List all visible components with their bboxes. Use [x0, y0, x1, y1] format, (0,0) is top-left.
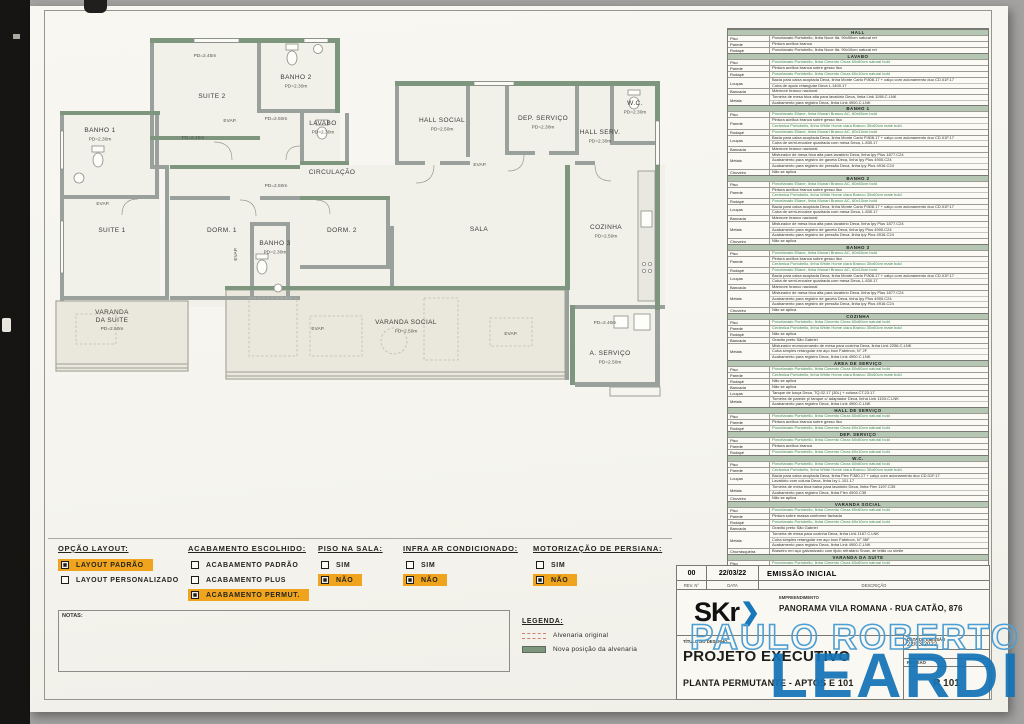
room-label: A. SERVIÇO [589, 350, 630, 357]
spec-row-lines: Pintura acrílica branca sobre gesso liso… [770, 188, 988, 198]
spec-row-label: Bancada [728, 526, 770, 531]
spec-line: Cerâmica Portobello, linha White Home cl… [770, 468, 988, 473]
spec-row: PisoPorcelanato Portobello, linha Ciment… [728, 366, 988, 372]
spec-row-lines: Não se aplica [770, 170, 988, 175]
spec-row-label: Louças [728, 136, 770, 146]
spec-line: Pintura acrílica branca sobre gesso liso [770, 420, 988, 425]
spec-line: Porcelanato Eliane, linha Munari Branco … [770, 199, 988, 204]
option-item: NÃO [533, 574, 577, 586]
spec-line: Porcelanato Eliane, linha Munari Branco … [770, 112, 988, 117]
option-item: ACABAMENTO PLUS [188, 574, 295, 586]
option-item: ACABAMENTO PERMUT. [188, 589, 309, 601]
legend-item: Nova posição da alvenaria [522, 646, 637, 653]
spec-row-label: Bancada [728, 89, 770, 94]
spec-row-label: Piso [728, 251, 770, 256]
revision-row: 00 22/03/22 EMISSÃO INICIAL [677, 566, 989, 581]
spec-line: Não se aplica [770, 170, 988, 175]
spec-row: RodapéPorcelanato Portobello, linha Cime… [728, 71, 988, 77]
spec-row: BancadaNão se aplica [728, 384, 988, 390]
spec-row-lines: Porcelanato Portobello, linha Cimento Ci… [770, 367, 988, 372]
spec-row-label: Bancada [728, 385, 770, 390]
spec-row-label: Parede [728, 66, 770, 71]
photo-artifact [2, 318, 11, 332]
spec-line: Porcelanato Portobello, linha Noce Itá. … [770, 48, 988, 53]
spec-line: Mármore branco nacional [770, 89, 988, 94]
spec-row-lines: Torneira de mesa bica baixa para lavatór… [770, 485, 988, 495]
drawing-sheet: SUITE 2BANHO 2PD=2.30mBANHO 1PD=2.30mLAV… [30, 6, 1008, 712]
spec-row: LouçasBacia para caixa acoplada Deca, li… [728, 135, 988, 146]
spec-row: RodapéPorcelanato Eliane, linha Munari B… [728, 267, 988, 273]
spec-line: Cerâmica Portobello, linha White Home cl… [770, 373, 988, 378]
spec-row-lines: Torneira de mesa bica alta para lavatóri… [770, 95, 988, 105]
option-label: ACABAMENTO PLUS [206, 577, 286, 584]
notes-label: NOTAS: [59, 611, 509, 621]
spec-row: PisoPorcelanato Portobello, linha Ciment… [728, 59, 988, 65]
spec-row-lines: Bacia para caixa acoplada Deca, linha Mo… [770, 136, 988, 146]
spec-row: PisoPorcelanato Portobello, linha Ciment… [728, 437, 988, 443]
spec-line: Mármore branco nacional [770, 285, 988, 290]
spec-row-lines: Torneira de parede p/ tanque c/ adaptado… [770, 397, 988, 407]
spec-row-label: Metais [728, 291, 770, 307]
option-label: LAYOUT PADRÃO [76, 562, 144, 569]
spec-row-lines: Porcelanato Portobello, linha Cimento Ci… [770, 72, 988, 77]
spec-line: Porcelanato Portobello, linha Cimento Ci… [770, 508, 988, 513]
revision-description: EMISSÃO INICIAL [759, 566, 989, 580]
room-label: EVAP. [96, 201, 109, 207]
spec-row-label: Parede [728, 257, 770, 267]
spec-line: Granito preto São Gabriel [770, 526, 988, 531]
spec-line: Acabamento para registro Deca, linha Lin… [770, 401, 988, 407]
spec-line: Cuba de semi-encaixe quadrada com mesa D… [770, 278, 988, 284]
spec-line: Mármore branco nacional [770, 147, 988, 152]
spec-row-lines: Porcelanato Eliane, linha Munari Branco … [770, 199, 988, 204]
spec-row-label: Parede [728, 373, 770, 378]
spec-row: RodapéPorcelanato Portobello, linha Noce… [728, 47, 988, 53]
spec-line: Cerâmica Portobello, linha White Home cl… [770, 326, 988, 331]
development-label: EMPREENDIMENTO [779, 595, 985, 600]
revision-number: 00 [677, 566, 707, 580]
room-label: DORM. 2 [327, 227, 357, 234]
spec-row: RodapéPorcelanato Portobello, linha Cime… [728, 519, 988, 525]
room-label: EVAP. [504, 331, 517, 337]
spec-row-label: Piso [728, 438, 770, 443]
spec-row-label: Rodapé [728, 450, 770, 455]
spec-line: Não se aplica [770, 379, 988, 384]
legend-title: LEGENDA: [522, 618, 637, 625]
spec-row-label: Piso [728, 112, 770, 117]
room-label: PD=2.45m [182, 135, 205, 141]
room-label: PD=2.50m [265, 116, 288, 122]
spec-row-lines: Misturador de mesa bica alta para lavató… [770, 222, 988, 238]
spec-line: Cerâmica Portobello, linha White Home cl… [770, 261, 988, 267]
option-group: ACABAMENTO ESCOLHIDO:ACABAMENTO PADRÃOAC… [188, 544, 309, 604]
room-label: HALL SOCIAL [419, 117, 465, 124]
divider-line [48, 538, 672, 539]
spec-row: MetaisTorneira de mesa bica alta para la… [728, 94, 988, 105]
photo-artifact [84, 0, 107, 13]
spec-row-lines: Pintura acrílica branca [770, 444, 988, 449]
spec-row-label: Piso [728, 367, 770, 372]
spec-row-label: Parede [728, 468, 770, 473]
legend-swatch-original [522, 633, 546, 639]
spec-line: Cerâmica Portobello, linha White Home cl… [770, 123, 988, 129]
option-item: SIM [533, 559, 574, 571]
checkbox[interactable] [61, 576, 69, 584]
spec-row-label: Louças [728, 391, 770, 396]
spec-line: Porcelanato Portobello, linha Cimento Ci… [770, 60, 988, 65]
spec-row: ChurrasqueiraBraseiro em aço galvanizado… [728, 548, 988, 554]
room-label: EVAP. [311, 326, 324, 332]
option-label: SIM [421, 562, 435, 569]
spec-row-lines: Cerâmica Portobello, linha White Home cl… [770, 373, 988, 378]
spec-line: Porcelanato Eliane, linha Munari Branco … [770, 251, 988, 256]
spec-row: MetaisMisturador de mesa bica alta para … [728, 152, 988, 169]
spec-line: Acabamento para registro de pressão Deca… [770, 232, 988, 238]
spec-row: ParedePintura acrílica branca sobre gess… [728, 65, 988, 71]
spec-row-label: Parede [728, 420, 770, 425]
spec-row: ParedeCerâmica Portobello, linha White H… [728, 325, 988, 331]
room-label: SUITE 1 [98, 227, 125, 234]
checkbox[interactable] [321, 576, 329, 584]
spec-line: Cuba de semi-encaixe quadrada com mesa D… [770, 140, 988, 146]
spec-line: Acabamento para registro Deca, linha Lin… [770, 542, 988, 548]
spec-line: Porcelanato Portobello, linha Cimento Ci… [770, 462, 988, 467]
spec-row-lines: Não se aplica [770, 239, 988, 244]
spec-row-label: Rodapé [728, 199, 770, 204]
spec-line: Porcelanato Portobello, linha Cimento Ci… [770, 320, 988, 325]
finishes-spec-table: HALLPisoPorcelanato Portobello, linha No… [727, 28, 989, 591]
spec-row-lines: Pintura acrílica branca [770, 42, 988, 47]
spec-row: LouçasBacia para caixa acoplada Deca, li… [728, 473, 988, 484]
room-label: CIRCULAÇÃO [309, 167, 356, 176]
spec-line: Lavatório com coluna Deca, linha Izy L.1… [770, 478, 988, 484]
option-label: SIM [551, 562, 565, 569]
spec-row-lines: Pintura acrílica branca sobre gesso liso… [770, 118, 988, 128]
spec-row: ChuveiroNão se aplica [728, 238, 988, 244]
spec-row-label: Parede [728, 444, 770, 449]
spec-row-lines: Misturador de mesa bica alta para lavató… [770, 291, 988, 307]
option-label: NÃO [336, 577, 353, 584]
floor-plan: SUITE 2BANHO 2PD=2.30mBANHO 1PD=2.30mLAV… [54, 26, 714, 426]
spec-row-label: Metais [728, 344, 770, 360]
option-label: LAYOUT PERSONALIZADO [76, 577, 179, 584]
spec-row: RodapéPorcelanato Eliane, linha Munari B… [728, 198, 988, 204]
spec-row-lines: Porcelanato Portobello, linha Cimento Ci… [770, 520, 988, 525]
spec-row-lines: Porcelanato Portobello, linha Cimento Ci… [770, 438, 988, 443]
spec-line: Pintura acrílica branca sobre gesso liso [770, 66, 988, 71]
spec-row: ParedePintura acrílica branca [728, 41, 988, 47]
room-label: PD=2.30m [89, 137, 112, 143]
spec-row-label: Metais [728, 532, 770, 548]
option-label: ACABAMENTO PADRÃO [206, 562, 298, 569]
spec-row-lines: Porcelanato Portobello, linha Cimento Ci… [770, 426, 988, 431]
spec-row: ParedeCerâmica Portobello, linha White H… [728, 467, 988, 473]
spec-row: MetaisMisturador monocomando de mesa par… [728, 343, 988, 360]
spec-row-lines: Porcelanato Eliane, linha Munari Branco … [770, 112, 988, 117]
spec-row-lines: Porcelanato Portobello, linha Cimento Ci… [770, 60, 988, 65]
spec-row-label: Rodapé [728, 520, 770, 525]
spec-row: LouçasBacia para caixa acoplada Deca, li… [728, 273, 988, 284]
spec-line: Tanque de louça Deca, TQ.02.17 (30L) + c… [770, 391, 988, 396]
spec-row-label: Bancada [728, 285, 770, 290]
revision-col-header: REV. N° [677, 581, 707, 589]
development-name: PANORAMA VILA ROMANA - RUA CATÃO, 876 [779, 604, 985, 613]
spec-row-label: Rodapé [728, 130, 770, 135]
spec-line: Porcelanato Eliane, linha Munari Branco … [770, 182, 988, 187]
spec-row-label: Parede [728, 514, 770, 519]
spec-row-label: Metais [728, 153, 770, 169]
revision-date: 22/03/22 [707, 566, 759, 580]
spec-line: Porcelanato Portobello, linha Cimento Ci… [770, 426, 988, 431]
room-label: COZINHA [590, 224, 622, 231]
spec-row-lines: Porcelanato Portobello, linha Cimento Ci… [770, 508, 988, 513]
spec-row: RodapéPorcelanato Portobello, linha Cime… [728, 449, 988, 455]
room-label: PD=2.30m [624, 110, 647, 116]
spec-line: Acabamento para registro Deca, linha Lin… [770, 100, 988, 106]
photo-left-edge [0, 0, 30, 724]
spec-row-label: Metais [728, 222, 770, 238]
spec-row-lines: Pintura acrílica branca sobre gesso liso [770, 66, 988, 71]
spec-row: ParedeCerâmica Portobello, linha White H… [728, 372, 988, 378]
spec-row-label: Rodapé [728, 332, 770, 337]
option-item: ACABAMENTO PADRÃO [188, 559, 307, 571]
legend-item-label: Alvenaria original [553, 632, 608, 639]
option-item: NÃO [403, 574, 447, 586]
spec-row-lines: Cerâmica Portobello, linha White Home cl… [770, 326, 988, 331]
spec-row: PisoPorcelanato Portobello, linha Ciment… [728, 461, 988, 467]
checkbox[interactable] [536, 561, 544, 569]
option-group: PISO NA SALA:SIMNÃO [318, 544, 383, 589]
spec-line: Porcelanato Portobello, linha Noce Itá. … [770, 36, 988, 41]
checkbox[interactable] [406, 561, 414, 569]
spec-row: PisoPorcelanato Portobello, linha Ciment… [728, 413, 988, 419]
spec-line: Acabamento para registro Deca, linha Fle… [770, 490, 988, 496]
checkbox[interactable] [191, 561, 199, 569]
spec-row-lines: Granito preto São Gabriel [770, 338, 988, 343]
photo-artifact [13, 34, 20, 39]
room-label: PD=2.30m [264, 250, 287, 256]
spec-line: Não se aplica [770, 496, 988, 501]
option-label: NÃO [551, 577, 568, 584]
spec-row-label: Piso [728, 462, 770, 467]
spec-row: ParedePintura acrílica branca sobre gess… [728, 256, 988, 267]
option-group: OPÇÃO LAYOUT:LAYOUT PADRÃOLAYOUT PERSONA… [58, 544, 188, 589]
spec-row: PisoPorcelanato Portobello, linha Noce I… [728, 35, 988, 41]
option-group-title: PISO NA SALA: [318, 544, 383, 553]
spec-line: Braseiro em aço galvanizado com tijolo r… [770, 549, 988, 554]
option-group-title: MOTORIZAÇÃO DE PERSIANA: [533, 544, 662, 553]
room-label: VARANDA [95, 309, 129, 316]
spec-row-label: Parede [728, 188, 770, 198]
room-label: PD=2.50m [599, 360, 622, 366]
spec-row-label: Rodapé [728, 48, 770, 53]
spec-row-lines: Pintura sobre massa conforme fachada [770, 514, 988, 519]
spec-row-label: Parede [728, 42, 770, 47]
spec-line: Não se aplica [770, 308, 988, 313]
spec-row-lines: Porcelanato Eliane, linha Munari Branco … [770, 182, 988, 187]
room-label: PD=2.50m [265, 183, 288, 189]
option-label: SIM [336, 562, 350, 569]
spec-row: ChuveiroNão se aplica [728, 169, 988, 175]
spec-line: Porcelanato Eliane, linha Munari Branco … [770, 130, 988, 135]
option-label: NÃO [421, 577, 438, 584]
spec-row: BancadaGranito preto São Gabriel [728, 337, 988, 343]
revision-col-header: DESCRIÇÃO [759, 581, 989, 589]
spec-row-lines: Porcelanato Eliane, linha Munari Branco … [770, 251, 988, 256]
spec-line: Porcelanato Portobello, linha Cimento Ci… [770, 438, 988, 443]
legend-item: Alvenaria original [522, 632, 637, 639]
spec-row: ParedePintura sobre massa conforme facha… [728, 513, 988, 519]
room-label: PD=2.50m [395, 329, 418, 335]
option-group-title: OPÇÃO LAYOUT: [58, 544, 188, 553]
spec-row-label: Piso [728, 508, 770, 513]
notes-box: NOTAS: [58, 610, 510, 672]
spec-row-lines: Porcelanato Portobello, linha Cimento Ci… [770, 450, 988, 455]
spec-row-lines: Não se aplica [770, 308, 988, 313]
option-item: SIM [318, 559, 359, 571]
spec-row-label: Piso [728, 414, 770, 419]
spec-row-lines: Porcelanato Portobello, linha Noce Itá. … [770, 36, 988, 41]
spec-row-lines: Mármore branco nacional [770, 285, 988, 290]
spec-row: RodapéPorcelanato Portobello, linha Cime… [728, 425, 988, 431]
spec-row: ParedePintura acrílica branca sobre gess… [728, 117, 988, 128]
spec-row-lines: Mármore branco nacional [770, 216, 988, 221]
spec-row: PisoPorcelanato Eliane, linha Munari Bra… [728, 181, 988, 187]
spec-row-label: Piso [728, 60, 770, 65]
spec-row-lines: Porcelanato Eliane, linha Munari Branco … [770, 130, 988, 135]
room-label: DEP. SERVIÇO [518, 115, 568, 122]
spec-row-lines: Não se aplica [770, 379, 988, 384]
spec-row-label: Churrasqueira [728, 549, 770, 554]
spec-row: MetaisTorneira de mesa bica baixa para l… [728, 484, 988, 495]
spec-row-label: Metais [728, 397, 770, 407]
spec-line: Porcelanato Eliane, linha Munari Branco … [770, 268, 988, 273]
checkbox[interactable] [406, 576, 414, 584]
spec-row-label: Rodapé [728, 72, 770, 77]
spec-line: Porcelanato Portobello, linha Cimento Ci… [770, 72, 988, 77]
spec-row-lines: Não se aplica [770, 385, 988, 390]
spec-row: LouçasTanque de louça Deca, TQ.02.17 (30… [728, 390, 988, 396]
room-label: LAVABO [309, 120, 336, 127]
spec-row-label: Rodapé [728, 268, 770, 273]
spec-row-label: Piso [728, 36, 770, 41]
spec-row-label: Louças [728, 205, 770, 215]
spec-row-lines: Cerâmica Portobello, linha White Home cl… [770, 468, 988, 473]
spec-line: Cuba de apoio retangular Deca L.1400.17 [770, 83, 988, 89]
spec-row-label: Bancada [728, 147, 770, 152]
spec-line: Acabamento para registro de pressão Deca… [770, 301, 988, 307]
room-label: PD=2.30m [285, 84, 308, 90]
checkbox[interactable] [61, 561, 69, 569]
spec-row-lines: Porcelanato Eliane, linha Munari Branco … [770, 268, 988, 273]
spec-row: ParedePintura acrílica branca [728, 443, 988, 449]
photo-of-sheet: SUITE 2BANHO 2PD=2.30mBANHO 1PD=2.30mLAV… [0, 0, 1024, 724]
room-label: PD=2.50m [431, 127, 454, 133]
option-item: LAYOUT PADRÃO [58, 559, 153, 571]
spec-row-label: Piso [728, 182, 770, 187]
spec-row: LouçasBacia para caixa acoplada Deca, li… [728, 204, 988, 215]
spec-row-label: Louças [728, 474, 770, 484]
spec-row: BancadaGranito preto São Gabriel [728, 525, 988, 531]
spec-row-lines: Porcelanato Portobello, linha Noce Itá. … [770, 48, 988, 53]
spec-line: Pintura acrílica branca [770, 42, 988, 47]
spec-row-lines: Misturador monocomando de mesa para cozi… [770, 344, 988, 360]
spec-row: PisoPorcelanato Portobello, linha Ciment… [728, 507, 988, 513]
room-label: SUITE 2 [198, 93, 225, 100]
room-label: PD=2.30m [589, 139, 612, 145]
spec-row: BancadaMármore branco nacional [728, 215, 988, 221]
room-label: PD=2.30m [312, 130, 335, 136]
spec-row: ParedePintura acrílica branca sobre gess… [728, 187, 988, 198]
spec-row: RodapéNão se aplica [728, 331, 988, 337]
spec-line: Porcelanato Portobello, linha Cimento Ci… [770, 450, 988, 455]
option-group-title: INFRA AR CONDICIONADO: [403, 544, 518, 553]
spec-row-label: Bancada [728, 216, 770, 221]
spec-row: ChuveiroNão se aplica [728, 495, 988, 501]
option-item: NÃO [318, 574, 362, 586]
spec-row: BancadaMármore branco nacional [728, 88, 988, 94]
legend-swatch-new [522, 646, 546, 653]
spec-row-lines: Pintura acrílica branca sobre gesso liso [770, 420, 988, 425]
room-label: HALL SERV. [580, 129, 621, 136]
spec-row-label: Rodapé [728, 426, 770, 431]
spec-row-lines: Não se aplica [770, 496, 988, 501]
spec-row: PisoPorcelanato Eliane, linha Munari Bra… [728, 250, 988, 256]
spec-row-lines: Bacia para caixa acoplada Deca, linha Fl… [770, 474, 988, 484]
room-label: DA SUITE [96, 317, 129, 324]
checkbox[interactable] [191, 576, 199, 584]
spec-line: Não se aplica [770, 239, 988, 244]
spec-row-label: Bancada [728, 338, 770, 343]
spec-line: Não se aplica [770, 332, 988, 337]
spec-row-label: Louças [728, 78, 770, 88]
spec-row-label: Louças [728, 274, 770, 284]
room-label: EVAP. [223, 118, 236, 124]
room-label: BANHO 2 [280, 74, 311, 81]
spec-row-lines: Tanque de louça Deca, TQ.02.17 (30L) + c… [770, 391, 988, 396]
spec-row: MetaisTorneira de parede p/ tanque c/ ad… [728, 396, 988, 407]
options-row: OPÇÃO LAYOUT:LAYOUT PADRÃOLAYOUT PERSONA… [30, 544, 710, 608]
spec-line: Cerâmica Portobello, linha White Home cl… [770, 192, 988, 198]
spec-line: Mármore branco nacional [770, 216, 988, 221]
spec-row-label: Metais [728, 485, 770, 495]
spec-row-lines: Mármore branco nacional [770, 147, 988, 152]
spec-row-label: Chuveiro [728, 308, 770, 313]
spec-row-lines: Torneira de mesa para cozinha Deca, linh… [770, 532, 988, 548]
spec-row-label: Parede [728, 326, 770, 331]
room-label: BANHO 3 [259, 240, 290, 247]
spec-row: BancadaMármore branco nacional [728, 146, 988, 152]
spec-line: Acabamento para registro Deca, linha Lin… [770, 354, 988, 360]
spec-row-lines: Mármore branco nacional [770, 89, 988, 94]
spec-row-lines: Pintura acrílica branca sobre gesso liso… [770, 257, 988, 267]
spec-row-lines: Bacia para caixa acoplada Deca, linha Mo… [770, 205, 988, 215]
option-item: SIM [403, 559, 444, 571]
room-label: PD=2.50m [101, 326, 124, 332]
room-label: PD=2.30m [532, 125, 555, 131]
checkbox[interactable] [536, 576, 544, 584]
spec-row-label: Parede [728, 118, 770, 128]
checkbox[interactable] [321, 561, 329, 569]
spec-row-lines: Bacia para caixa acoplada Deca, linha Mo… [770, 78, 988, 88]
room-label: VARANDA SOCIAL [375, 319, 437, 326]
legend-item-label: Nova posição da alvenaria [553, 646, 637, 653]
spec-line: Porcelanato Portobello, linha Cimento Ci… [770, 367, 988, 372]
spec-line: Granito preto São Gabriel [770, 338, 988, 343]
checkbox[interactable] [191, 591, 199, 599]
room-label: W.C. [627, 100, 643, 107]
spec-row-lines: Bacia para caixa acoplada Deca, linha Mo… [770, 274, 988, 284]
